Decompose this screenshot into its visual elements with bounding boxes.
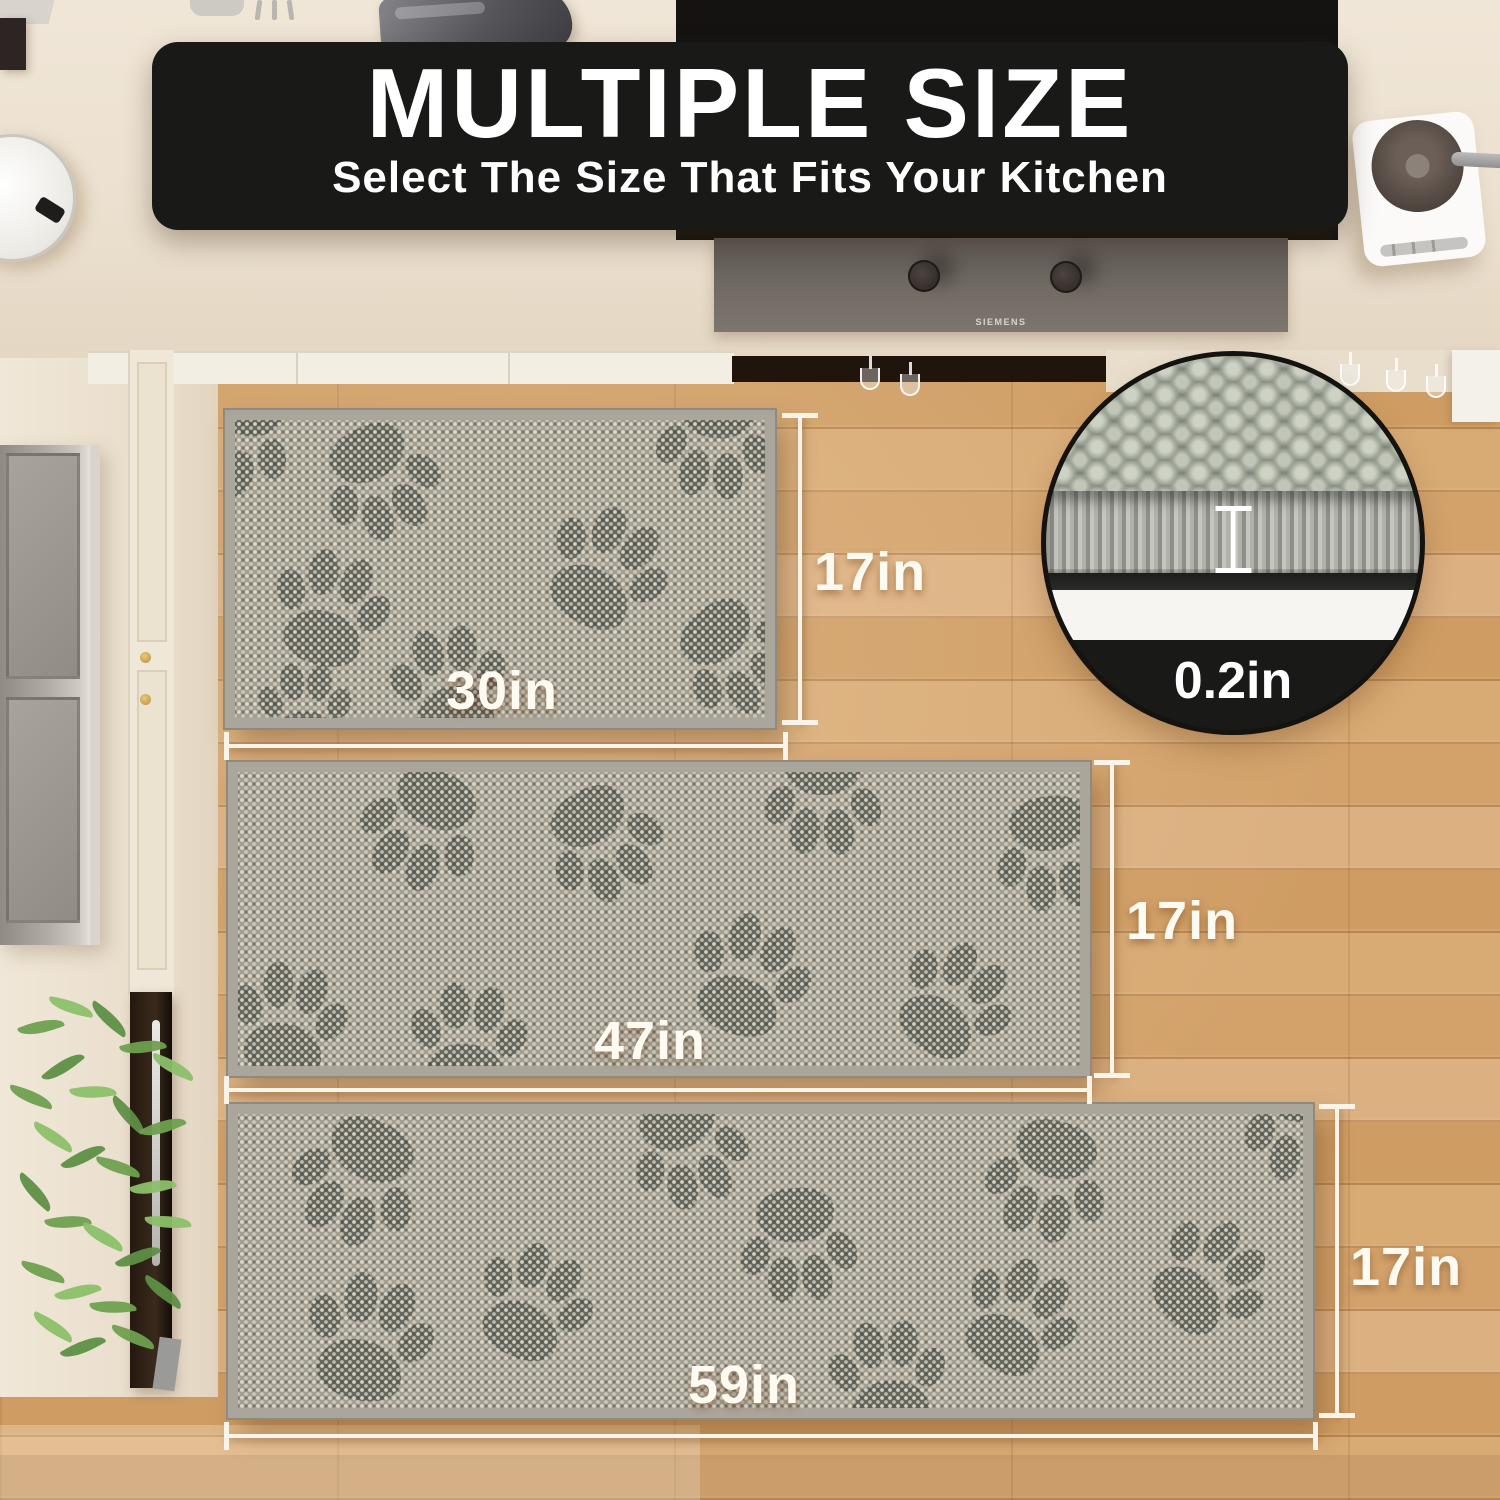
hanging-glass-icon — [858, 356, 884, 392]
paw-print-icon — [344, 772, 502, 909]
cabinet-panel — [137, 362, 167, 642]
mat-small-width-measure-line — [226, 744, 786, 748]
cabinet-knob-icon — [140, 652, 151, 663]
cabinet-front-strip — [88, 351, 734, 384]
mat-small-width-label: 30in — [446, 660, 558, 722]
stove-knob-icon — [908, 260, 940, 292]
paw-print-icon — [874, 921, 1033, 1066]
mat-large-height-label: 17in — [1350, 1236, 1462, 1298]
paw-print-icon — [738, 1179, 858, 1308]
kitchen-product-scene: SIEMENS — [0, 0, 1500, 1500]
paw-print-icon — [616, 1114, 760, 1224]
paw-print-icon — [458, 1226, 608, 1381]
mat-small-height-measure-line — [798, 415, 802, 723]
paw-print-icon — [292, 1260, 443, 1408]
cooker-lid-knob — [1404, 153, 1430, 179]
paw-print-icon — [523, 487, 686, 654]
paw-print-icon — [261, 662, 349, 718]
cooker-vent — [1380, 236, 1469, 257]
paw-print-icon — [305, 420, 455, 558]
mat-pile-closeup — [1046, 356, 1420, 491]
hanging-glass-icon — [1424, 364, 1450, 400]
cabinet-panel — [137, 670, 167, 970]
paw-print-icon — [408, 977, 528, 1066]
hanging-glass-icon — [898, 362, 924, 398]
cabinet-knob-icon — [140, 694, 151, 705]
mat-medium-height-label: 17in — [1126, 890, 1238, 952]
mat-medium-height-measure-line — [1110, 762, 1114, 1076]
appliance-door — [6, 697, 80, 923]
utensil-icon — [272, 0, 277, 20]
paw-print-icon — [768, 772, 878, 857]
shelf-bracket — [1452, 350, 1500, 422]
mat-medium-width-measure-line — [226, 1088, 1090, 1092]
cup — [190, 0, 244, 16]
cream-cabinet — [128, 350, 174, 995]
mat-large-width-label: 59in — [688, 1354, 800, 1416]
paw-print-icon — [654, 574, 765, 718]
coffee-machine — [0, 18, 26, 70]
kettle-handle — [34, 196, 66, 224]
paw-print-icon — [238, 953, 353, 1066]
paw-print-icon — [976, 1114, 1120, 1255]
appliance-door — [6, 453, 80, 679]
paw-print-icon — [988, 783, 1080, 920]
stove-knob-icon — [1050, 261, 1082, 293]
banner-subtitle: Select The Size That Fits Your Kitchen — [152, 156, 1348, 200]
paw-print-icon — [261, 538, 398, 682]
headline-banner: MULTIPLE SIZE Select The Size That Fits … — [152, 42, 1348, 230]
paw-print-icon — [275, 1114, 440, 1264]
brand-label: SIEMENS — [714, 317, 1288, 327]
paw-print-icon — [828, 1314, 948, 1408]
paw-print-icon — [1248, 1114, 1303, 1184]
mat-small-height-label: 17in — [814, 541, 926, 603]
rice-cooker — [1351, 110, 1488, 268]
banner-title: MULTIPLE SIZE — [152, 54, 1348, 152]
thickness-measure-icon — [1231, 506, 1236, 573]
siemens-hood-panel: SIEMENS — [714, 238, 1288, 332]
thickness-detail-inset: 0.2in — [1046, 356, 1420, 730]
paw-print-icon — [1127, 1198, 1290, 1361]
stainless-appliance — [0, 445, 100, 945]
mat-large-height-measure-line — [1335, 1106, 1339, 1416]
paw-print-icon — [940, 1240, 1095, 1399]
mat-medium-width-label: 47in — [594, 1010, 706, 1072]
floor-bottom-shade — [0, 1455, 1500, 1500]
paw-print-icon — [525, 772, 680, 921]
cooker-lid — [1367, 115, 1468, 216]
paw-print-icon — [235, 420, 307, 510]
thickness-label: 0.2in — [1174, 651, 1293, 711]
mat-large-width-measure-line — [226, 1434, 1316, 1438]
inset-white-band — [1046, 590, 1420, 640]
paw-print-icon — [655, 420, 765, 505]
